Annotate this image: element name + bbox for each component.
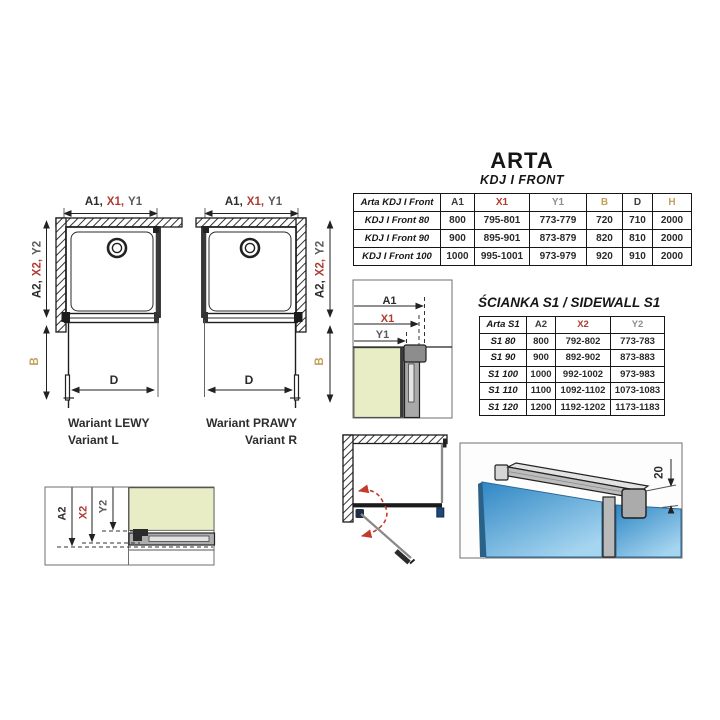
row-label: KDJ I Front 80: [354, 212, 441, 230]
detail-label-a2: A2: [56, 494, 69, 534]
table-cell: 1000: [441, 248, 475, 266]
table-cell: 992-1002: [556, 366, 611, 383]
sidewall-section-title: ŚCIANKA S1 / SIDEWALL S1: [478, 295, 660, 310]
detail-label-a1: A1: [377, 295, 402, 307]
table-cell: 800: [527, 333, 556, 350]
swing-arrow-in: [359, 490, 383, 502]
table-cell: 710: [623, 212, 653, 230]
column-header: Arta KDJ I Front: [354, 194, 441, 212]
dim-label-b-left: B: [27, 354, 42, 369]
row-label: KDJ I Front 90: [354, 230, 441, 248]
table-cell: 973-983: [611, 366, 665, 383]
table-cell: 873-883: [611, 350, 665, 367]
table-cell: 2000: [653, 230, 692, 248]
column-header: Arta S1: [480, 317, 527, 334]
product-title-block: ARTA KDJ I FRONT: [353, 150, 691, 187]
door-handle: [396, 551, 409, 563]
dim-label-d-right: D: [229, 373, 269, 387]
caption-variant-right-line2: Variant R: [197, 432, 297, 449]
caption-variant-right: Wariant PRAWY Variant R: [197, 415, 297, 448]
wall-top-hatch: [56, 218, 182, 227]
drawing-door-swing: [343, 435, 447, 564]
table-cell: 773-783: [611, 333, 665, 350]
table-cell: 1192-1202: [556, 399, 611, 416]
table-cell: 1173-1183: [611, 399, 665, 416]
table-cell: 792-802: [556, 333, 611, 350]
table-cell: 920: [587, 248, 623, 266]
door-handle: [66, 375, 70, 400]
fixed-front-panel: [354, 503, 443, 507]
hinge: [62, 312, 71, 322]
sidewall-size-table: Arta S1A2X2Y2S1 80800792-802773-783S1 90…: [479, 316, 665, 416]
table-row: KDJ I Front 90900895-901873-879820810200…: [354, 230, 692, 248]
detail-label-y2: Y2: [97, 487, 110, 527]
wall-bracket: [437, 508, 444, 517]
table-cell: 1000: [527, 366, 556, 383]
column-header: H: [653, 194, 692, 212]
glass-joint-profile: [603, 497, 615, 557]
drawing-support-bar: [460, 443, 682, 558]
row-label: S1 110: [480, 383, 527, 400]
column-header: A2: [527, 317, 556, 334]
column-header: Y2: [611, 317, 665, 334]
table-row: S1 1001000992-1002973-983: [480, 366, 665, 383]
glass-panel-plan: [354, 348, 401, 418]
door-handle: [295, 375, 299, 400]
row-label: S1 100: [480, 366, 527, 383]
caption-variant-left: Wariant LEWY Variant L: [68, 415, 150, 448]
table-cell: 900: [441, 230, 475, 248]
hinge: [294, 312, 303, 322]
header-row: Arta S1A2X2Y2: [480, 317, 665, 334]
table-row: S1 12012001192-12021173-1183: [480, 399, 665, 416]
header-row: Arta KDJ I FrontA1X1Y1BDH: [354, 194, 692, 212]
dim-label-front-right: A1,X1,Y1: [206, 196, 301, 208]
table-cell: 873-879: [530, 230, 587, 248]
dim-label-front-left: A1,X1,Y1: [66, 196, 161, 208]
table-cell: 810: [623, 230, 653, 248]
table-cell: 1073-1083: [611, 383, 665, 400]
table-cell: 1092-1102: [556, 383, 611, 400]
spec-sheet-page: ARTA KDJ I FRONT ŚCIANKA S1 / SIDEWALL S…: [0, 0, 720, 720]
detail-label-y1: Y1: [370, 329, 395, 341]
column-header: X1: [475, 194, 530, 212]
caption-variant-left-line2: Variant L: [68, 432, 150, 449]
table-cell: 900: [527, 350, 556, 367]
column-header: D: [623, 194, 653, 212]
table-cell: 720: [587, 212, 623, 230]
page-title: ARTA: [353, 150, 691, 172]
dim-label-side-left: A2,X2,Y2: [30, 220, 45, 320]
table-row: S1 11011001092-11021073-1083: [480, 383, 665, 400]
row-label: KDJ I Front 100: [354, 248, 441, 266]
caption-variant-right-line1: Wariant PRAWY: [197, 415, 297, 432]
table-cell: 795-801: [475, 212, 530, 230]
table-cell: 973-979: [530, 248, 587, 266]
table-cell: 2000: [653, 248, 692, 266]
table-cell: 995-1001: [475, 248, 530, 266]
detail-label-x1: X1: [375, 313, 400, 325]
table-cell: 910: [623, 248, 653, 266]
glass-panel-plan: [129, 488, 214, 531]
drawing-sidewall-profile-detail: [45, 487, 215, 565]
detail-label-x2: X2: [77, 493, 90, 533]
table-cell: 2000: [653, 212, 692, 230]
wall-top-hatch: [343, 435, 447, 444]
page-subtitle: KDJ I FRONT: [353, 173, 691, 187]
row-label: S1 90: [480, 350, 527, 367]
table-cell: 895-901: [475, 230, 530, 248]
dim-label-side-right: A2,X2,Y2: [313, 220, 328, 320]
table-cell: 820: [587, 230, 623, 248]
caption-variant-left-line1: Wariant LEWY: [68, 415, 150, 432]
wall-top-hatch: [196, 218, 306, 227]
dim-label-20: 20: [653, 455, 666, 491]
row-label: S1 80: [480, 333, 527, 350]
bar-connector: [622, 489, 646, 518]
table-cell: 1200: [527, 399, 556, 416]
table-cell: 773-779: [530, 212, 587, 230]
swing-arrow-out: [362, 506, 387, 536]
front-size-table: Arta KDJ I FrontA1X1Y1BDHKDJ I Front 808…: [353, 193, 692, 266]
table-row: KDJ I Front 80800795-801773-779720710200…: [354, 212, 692, 230]
wall-left-hatch: [343, 435, 353, 522]
table-row: S1 80800792-802773-783: [480, 333, 665, 350]
table-row: S1 90900892-902873-883: [480, 350, 665, 367]
table-cell: 892-902: [556, 350, 611, 367]
drawing-front-profile-detail: [353, 280, 452, 418]
dim-label-b-right: B: [312, 354, 327, 369]
table-cell: 1100: [527, 383, 556, 400]
row-label: S1 120: [480, 399, 527, 416]
column-header: B: [587, 194, 623, 212]
table-cell: 800: [441, 212, 475, 230]
column-header: X2: [556, 317, 611, 334]
dim-label-d-left: D: [94, 373, 134, 387]
table-row: KDJ I Front 1001000995-1001973-979920910…: [354, 248, 692, 266]
column-header: A1: [441, 194, 475, 212]
column-header: Y1: [530, 194, 587, 212]
